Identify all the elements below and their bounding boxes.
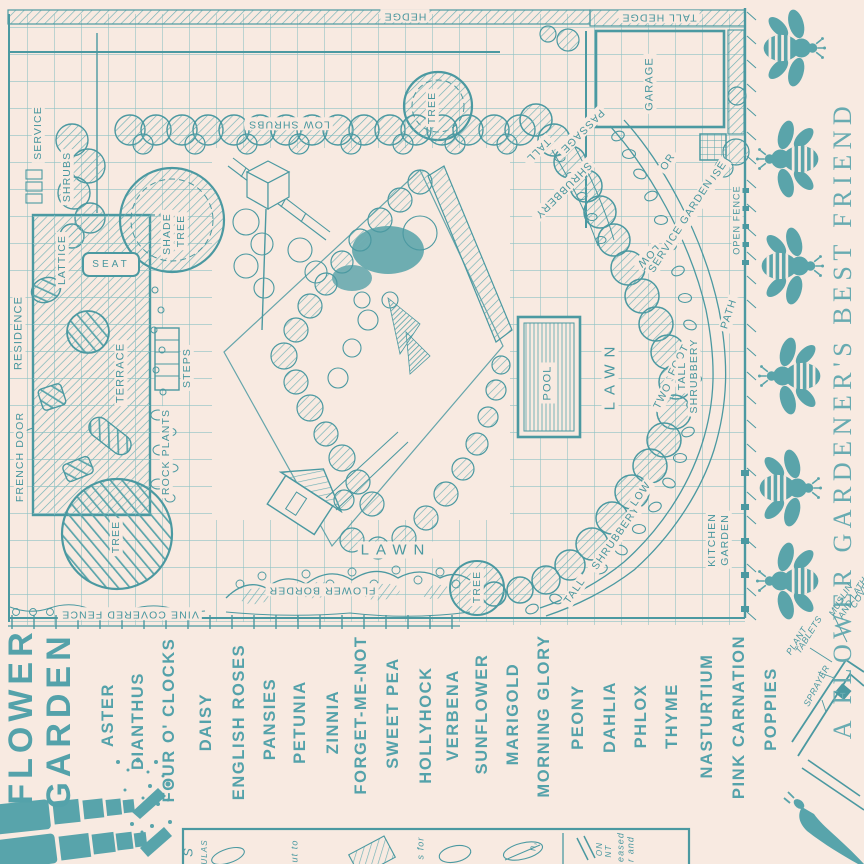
poster-labels: HEDGE TALL HEDGE LOW SHRUBS SERVICE SHRU… [0,0,864,864]
label-tall-lower: TALL [560,573,590,609]
label-vine-covered-fence: VINE COVERED FENCE [58,608,202,621]
label-rock-plants: ROCK PLANTS [160,406,173,498]
flower-daisy: DAISY [198,693,215,751]
info-fragment-0: S [182,847,195,857]
label-terrace: TERRACE [115,340,128,406]
flower-zinnia: ZINNIA [325,690,342,755]
flower-nasturtium: NASTURTIUM [699,653,716,778]
label-seat: SEAT [92,259,129,270]
label-open-fence: OPEN FENCE [732,182,743,258]
title-flower: FLOWER [4,627,38,804]
flower-dianthus: DIANTHUS [130,672,147,770]
info-fragment-6: NT [605,845,613,858]
label-path: PATH [717,295,740,334]
flower-verbena: VERBENA [445,669,462,761]
label-garage: GARAGE [644,54,657,114]
flower-petunia: PETUNIA [292,680,309,764]
seat-box: SEAT [82,252,140,277]
garden-poster: HEDGE TALL HEDGE LOW SHRUBS SERVICE SHRU… [0,0,864,864]
flower-forget-me-not: FORGET-ME-NOT [353,635,370,794]
label-hedge: HEDGE [381,10,430,23]
flower-phlox: PHLOX [633,684,650,749]
flower-marigold: MARIGOLD [505,663,522,766]
flower-dahlia: DAHLIA [602,681,619,753]
flower-aster: ASTER [100,683,117,747]
label-tall-upper: TALL [521,133,554,166]
tagline: A FLOWER GARDENER'S BEST FRIEND [830,101,856,739]
flower-peony: PEONY [570,684,587,750]
flower-hollyhock: HOLLYHOCK [418,666,435,783]
label-shrubbery-right: SHRUBBERY [688,335,701,416]
label-two: TWO [650,378,676,414]
label-pool: POOL [542,363,555,404]
label-lawn-vertical: LAWN [602,337,619,414]
label-flower-border: FLOWER BORDER [265,584,378,597]
label-passage: PASSAGE [555,104,608,157]
label-tree-left: TREE [110,518,123,556]
label-french-door: FRENCH DOOR [14,409,27,505]
label-lawn-horizontal: LAWN [358,542,435,559]
label-low-shrubs: LOW SHRUBS [245,118,333,131]
label-shrubbery-upper: SHRUBBERY [530,157,596,223]
info-fragment-5: ON [596,842,604,856]
flower-thyme: THYME [664,683,681,749]
info-fragment-1: ULAS [201,839,209,864]
label-greenhouse-2: OR [656,149,680,176]
label-service: SERVICE [32,103,45,163]
label-residence: RESIDENCE [13,293,26,373]
label-tall-hedge: TALL HEDGE [618,11,699,24]
info-fragment-2: ut to [291,839,300,862]
label-shrubbery-lower: SHRUBBERY [588,501,645,575]
flower-sunflower: SUNFLOWER [474,654,491,775]
info-fragment-8: r and [627,836,636,862]
title-garden: GARDEN [42,631,76,808]
label-tree-top: TREE [426,89,439,127]
label-kitchen-garden: GARDEN [719,511,732,569]
flower-sweet-pea: SWEET PEA [385,657,402,769]
label-lattice: LATTICE [56,232,69,288]
info-fragment-7: eased [617,832,626,862]
info-fragment-3: s for [417,836,426,859]
flower-poppies: POPPIES [763,667,780,751]
flower-pansies: PANSIES [262,678,279,760]
label-greenhouse-3: SERVICE GARDEN [644,174,717,277]
info-fragment-4: n, [529,841,538,851]
flower-four-o-clocks: FOUR O' CLOCKS [161,638,178,803]
label-tall-right: TALL [676,359,689,394]
flower-morning-glory: MORNING GLORY [536,634,553,797]
label-kitchen: KITCHEN [706,510,719,570]
label-shrubs: SHRUBS [61,149,74,205]
label-shade: SHADE [161,210,174,258]
label-tree-bottom: TREE [471,568,484,606]
label-steps: STEPS [181,345,194,391]
label-shade-tree: TREE [175,212,188,250]
flower-english-roses: ENGLISH ROSES [231,644,248,801]
flower-pink-carnation: PINK CARNATION [731,635,748,799]
